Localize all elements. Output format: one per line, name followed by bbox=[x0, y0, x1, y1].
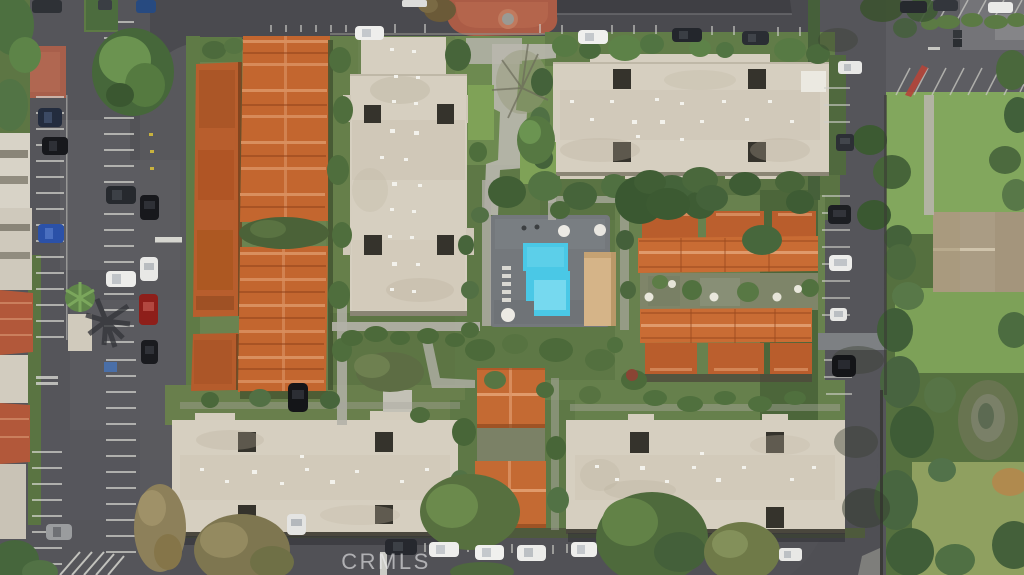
svg-text:CRMLS: CRMLS bbox=[341, 549, 431, 574]
